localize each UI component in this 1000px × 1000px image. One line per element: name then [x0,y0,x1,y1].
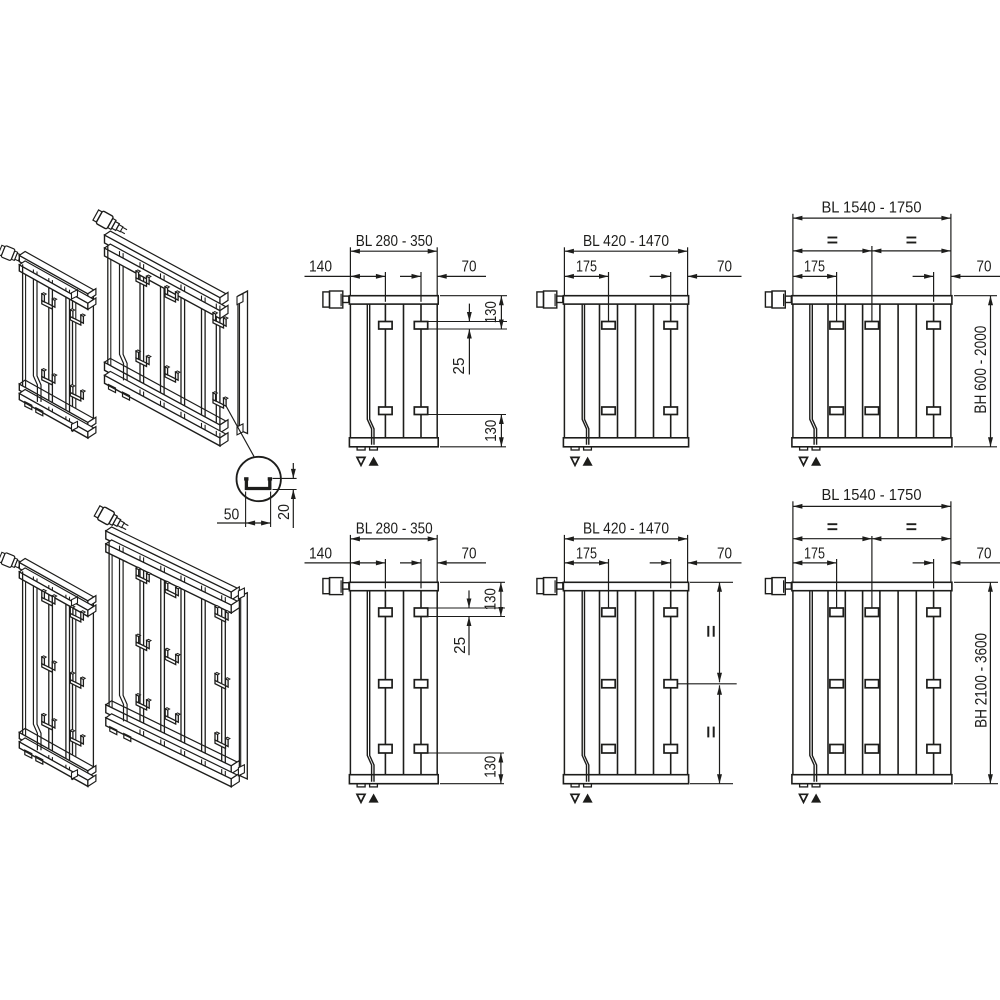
svg-text:70: 70 [717,259,732,276]
svg-text:BL 280 - 350: BL 280 - 350 [356,520,433,537]
svg-text:130: 130 [483,419,500,441]
svg-text:70: 70 [977,546,992,563]
svg-text:70: 70 [462,546,477,563]
svg-text:BL 280 - 350: BL 280 - 350 [356,233,433,250]
svg-text:130: 130 [483,755,500,777]
svg-text:70: 70 [462,259,477,276]
svg-text:70: 70 [977,259,992,276]
svg-text:70: 70 [717,546,732,563]
svg-text:25: 25 [451,358,468,375]
svg-text:BL 1540 - 1750: BL 1540 - 1750 [822,199,922,216]
svg-text:175: 175 [804,259,825,276]
svg-text:25: 25 [452,637,469,654]
svg-text:50: 50 [224,507,240,524]
svg-text:BL 1540 - 1750: BL 1540 - 1750 [822,487,922,504]
svg-text:BH 600 - 2000: BH 600 - 2000 [971,326,990,414]
svg-text:BL 420 - 1470: BL 420 - 1470 [583,520,669,537]
svg-text:130: 130 [483,301,500,323]
svg-text:175: 175 [576,259,597,276]
svg-text:BH 2100 - 3600: BH 2100 - 3600 [972,633,991,728]
svg-text:140: 140 [309,259,332,276]
svg-text:20: 20 [276,504,293,520]
svg-text:140: 140 [309,546,332,563]
svg-text:175: 175 [804,546,825,563]
svg-text:BL 420 - 1470: BL 420 - 1470 [583,233,669,250]
svg-text:130: 130 [483,588,500,610]
svg-text:175: 175 [576,546,597,563]
